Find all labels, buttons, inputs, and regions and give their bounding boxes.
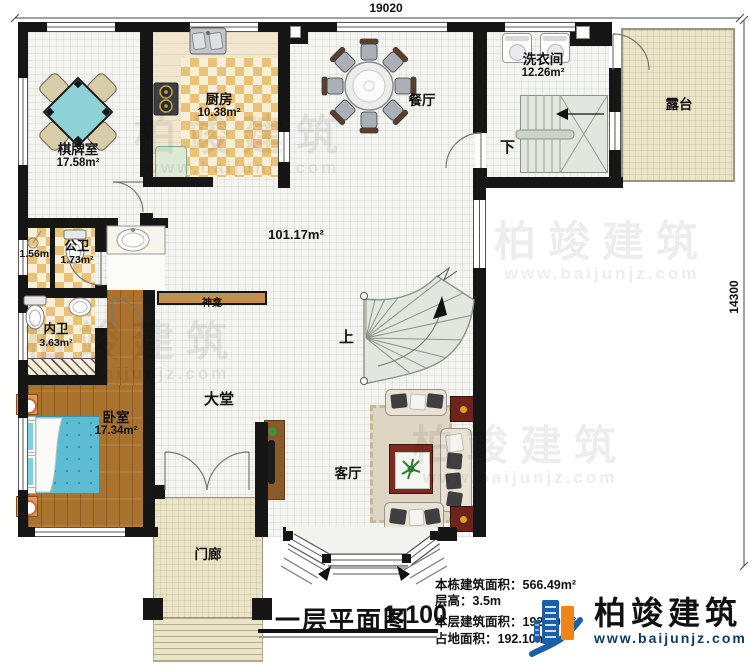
room-label-keting: 客厅	[335, 466, 362, 481]
stair-handrail	[516, 130, 574, 139]
title-underline	[258, 629, 438, 633]
door-laundry	[446, 133, 481, 168]
room-label-qipaishi: 棋牌室 17.58m²	[57, 142, 100, 170]
room-label-datang: 大堂	[204, 392, 234, 407]
stair-arrow	[556, 108, 568, 120]
stairs-up	[361, 188, 517, 428]
chess-table-set	[38, 72, 119, 153]
room-label-linyu-area: 1.56m²	[19, 248, 52, 261]
dimension-right: 14300	[727, 267, 741, 327]
dining-set	[322, 39, 416, 133]
stair-down-label: 下	[500, 136, 515, 157]
logo-glyph-icon	[528, 594, 590, 662]
room-label-neiwei: 内卫 3.63m²	[39, 322, 72, 350]
room-label-gongwei: 公卫 1.73m²	[60, 239, 93, 267]
room-label-chufang: 厨房 10.38m²	[198, 92, 241, 120]
room-label-lutai: 露台	[666, 97, 693, 112]
room-label-xiyijian: 洗衣间 12.26m²	[522, 52, 565, 80]
title-underline-thin	[259, 636, 437, 638]
company-logo: 柏竣建筑 www.baijunjz.com	[528, 594, 746, 664]
door-inner-bath	[112, 298, 142, 328]
entry-door-right	[207, 452, 249, 490]
room-label-menlang: 门廊	[195, 547, 222, 562]
room-label-canting: 餐厅	[409, 93, 436, 108]
hall-area-label: 101.17m²	[268, 228, 324, 241]
door-chess	[113, 182, 143, 212]
stair-up-label: 上	[339, 326, 354, 347]
bed-sheet	[36, 418, 62, 492]
logo-url: www.baijunjz.com	[594, 630, 747, 646]
logo-name: 柏竣建筑	[594, 596, 747, 630]
dimension-top: 19020	[364, 1, 408, 15]
floor-plan: 神龛	[0, 0, 750, 669]
entry-door-left	[165, 452, 207, 490]
door-terrace	[613, 34, 649, 70]
room-label-woshi: 卧室 17.34m²	[95, 410, 138, 438]
plan-overlay	[0, 0, 750, 669]
bay-window	[281, 527, 447, 584]
info-line-2: 层高：3.5m	[435, 590, 501, 609]
